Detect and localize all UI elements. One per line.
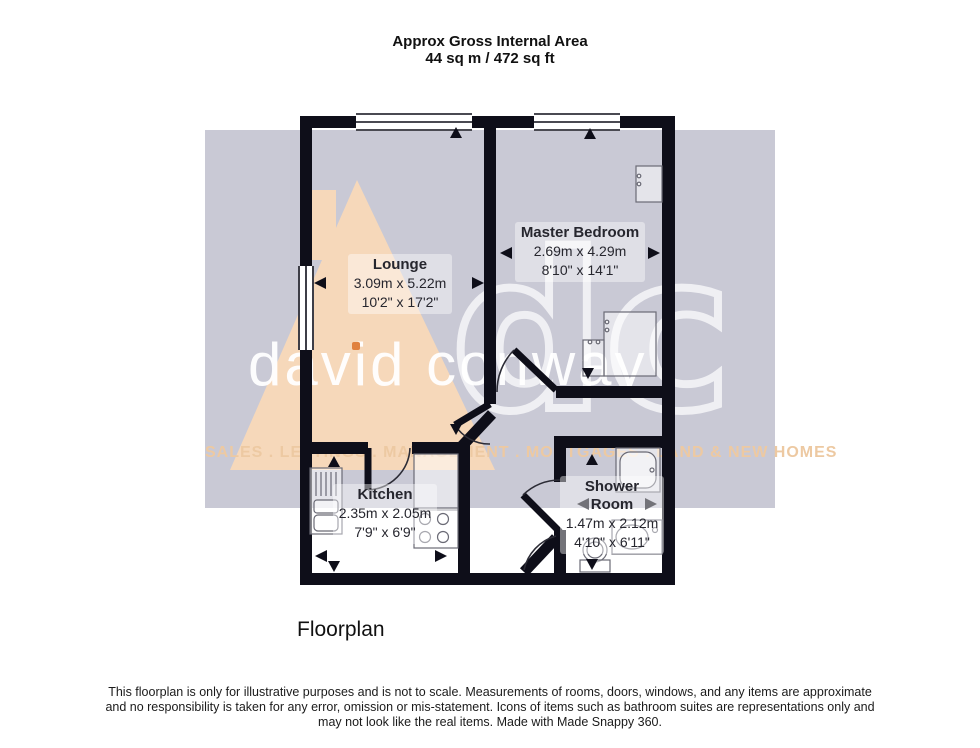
door-leaf-bedroom [514,350,556,390]
lounge-imperial: 10'2" x 17'2" [354,293,447,312]
kitchen-name: Kitchen [339,486,432,504]
kitchen-imperial: 7'9" x 6'9" [339,523,432,542]
lounge-name: Lounge [354,256,447,274]
disclaimer-line-2: and no responsibility is taken for any e… [0,700,980,715]
page-title: Approx Gross Internal Area 44 sq m / 472… [0,33,980,67]
floorplan-page: Approx Gross Internal Area 44 sq m / 472… [0,0,980,748]
window-bedroom-top [534,113,620,131]
arrow-up-kitchen [328,456,340,467]
wall-shower-top [566,436,662,448]
kitchen-metric: 2.35m x 2.05m [339,504,432,523]
room-label-kitchen: Kitchen 2.35m x 2.05m 7'9" x 6'9" [305,484,465,544]
wall-kitchen-top-left [312,442,368,454]
shower-metric: 1.47m x 2.12m [566,514,659,533]
shower-imperial: 4'10" x 6'11" [566,533,659,552]
shower-name: Shower Room [575,478,649,514]
arrow-right-kitchen [435,550,447,562]
room-label-shower-room: Shower Room 1.47m x 2.12m 4'10" x 6'11" [552,476,672,554]
wall-bottom [300,573,675,585]
arrow-down-kitchen [328,561,340,572]
lounge-metric: 3.09m x 5.22m [354,274,447,293]
wall-bedroom-bottom [556,386,662,398]
bedroom-dresser-icon [636,166,662,202]
door-arc-bedroom [497,350,514,392]
bedroom-imperial: 8'10" x 14'1" [521,261,639,280]
wall-diagonals [462,414,556,572]
window-lounge-top [356,113,472,131]
floorplan-drawing [0,0,980,748]
room-label-master-bedroom: Master Bedroom 2.69m x 4.29m 8'10" x 14'… [490,222,670,282]
bedroom-metric: 2.69m x 4.29m [521,242,639,261]
arrow-up-shower [586,454,598,465]
bedroom-name: Master Bedroom [521,224,639,242]
disclaimer: This floorplan is only for illustrative … [0,685,980,730]
arrow-left-kitchen [315,550,327,562]
title-line-2: 44 sq m / 472 sq ft [0,50,980,67]
floorplan-caption: Floorplan [297,618,385,642]
title-line-1: Approx Gross Internal Area [0,33,980,50]
room-label-lounge: Lounge 3.09m x 5.22m 10'2" x 17'2" [310,254,490,314]
disclaimer-line-1: This floorplan is only for illustrative … [0,685,980,700]
bedroom-desk-icon [583,312,656,376]
disclaimer-line-3: may not look like the real items. Made w… [0,715,980,730]
arrow-down-lounge [450,424,462,435]
